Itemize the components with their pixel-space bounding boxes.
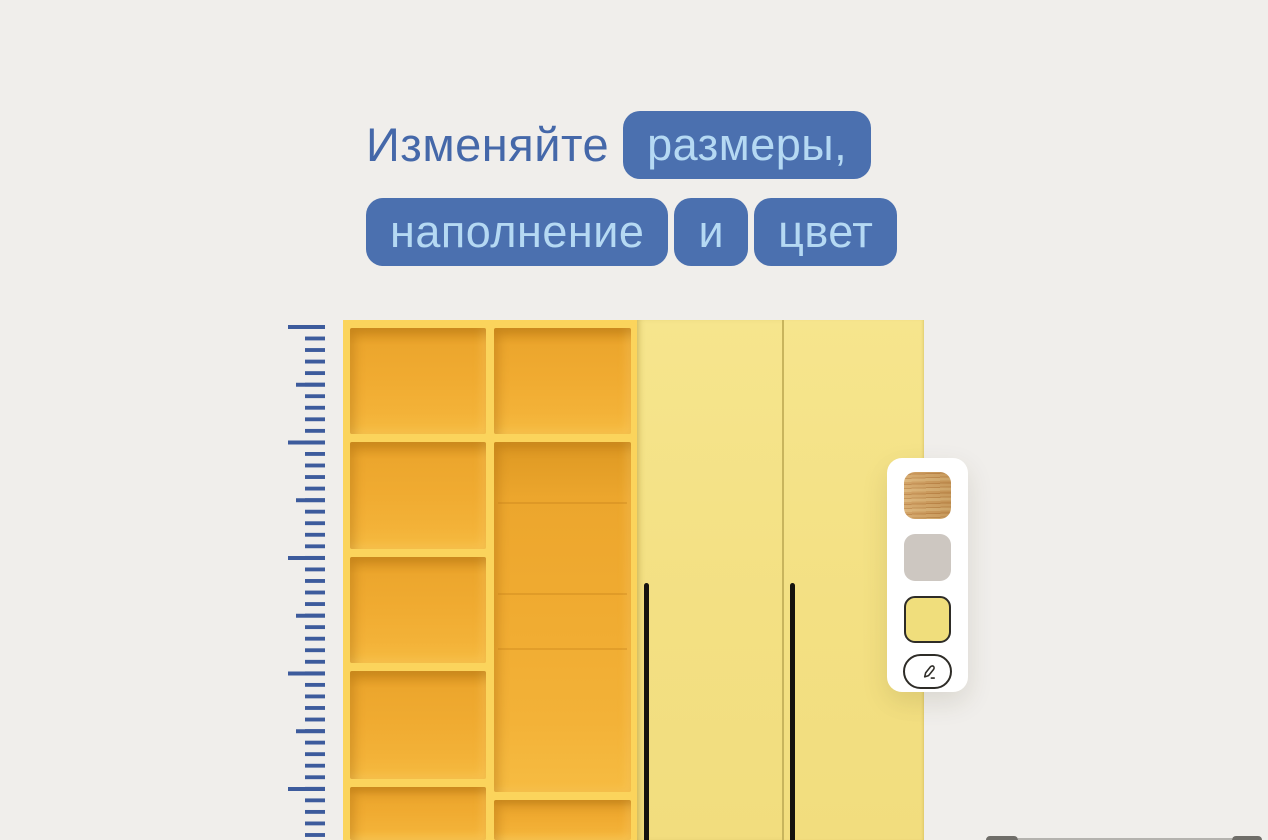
- title-pill-and: и: [674, 198, 748, 266]
- shelf-compartment: [350, 442, 486, 549]
- back-panel-seam: [498, 593, 627, 595]
- shelf-compartment: [350, 671, 486, 779]
- title-line-2: наполнение и цвет: [366, 198, 886, 266]
- bottom-edge-element: [986, 836, 1018, 840]
- wardrobe-door-left: [637, 320, 782, 840]
- pencil-icon: [917, 661, 939, 683]
- shelf-compartment: [350, 557, 486, 663]
- wardrobe-preview: [343, 320, 924, 840]
- color-palette-panel: [887, 458, 968, 692]
- gray-swatch[interactable]: [904, 534, 951, 581]
- shelf-compartment: [350, 787, 486, 840]
- door-handle: [790, 583, 795, 840]
- back-panel-seam: [498, 502, 627, 504]
- tall-compartment: [494, 442, 631, 792]
- promo-screen: Изменяйте размеры, наполнение и цвет: [0, 0, 1268, 840]
- shelf-compartment: [494, 800, 631, 840]
- shelf-compartment: [494, 328, 631, 434]
- title-pill-color: цвет: [754, 198, 897, 266]
- yellow-swatch-selected[interactable]: [904, 596, 951, 643]
- bottom-edge-element: [1232, 836, 1262, 840]
- title-line-1: Изменяйте размеры,: [366, 110, 886, 180]
- title-text: Изменяйте: [366, 110, 609, 180]
- door-handle: [644, 583, 649, 840]
- title-pill-sizes: размеры,: [623, 111, 871, 179]
- page-title: Изменяйте размеры, наполнение и цвет: [366, 110, 886, 266]
- measure-ruler: [288, 325, 325, 839]
- wardrobe-open-section: [343, 320, 637, 840]
- wood-swatch[interactable]: [904, 472, 951, 519]
- shelf-compartment: [350, 328, 486, 434]
- title-pill-filling: наполнение: [366, 198, 668, 266]
- door-seam: [782, 320, 784, 840]
- edit-color-button[interactable]: [903, 654, 952, 689]
- back-panel-seam: [498, 648, 627, 650]
